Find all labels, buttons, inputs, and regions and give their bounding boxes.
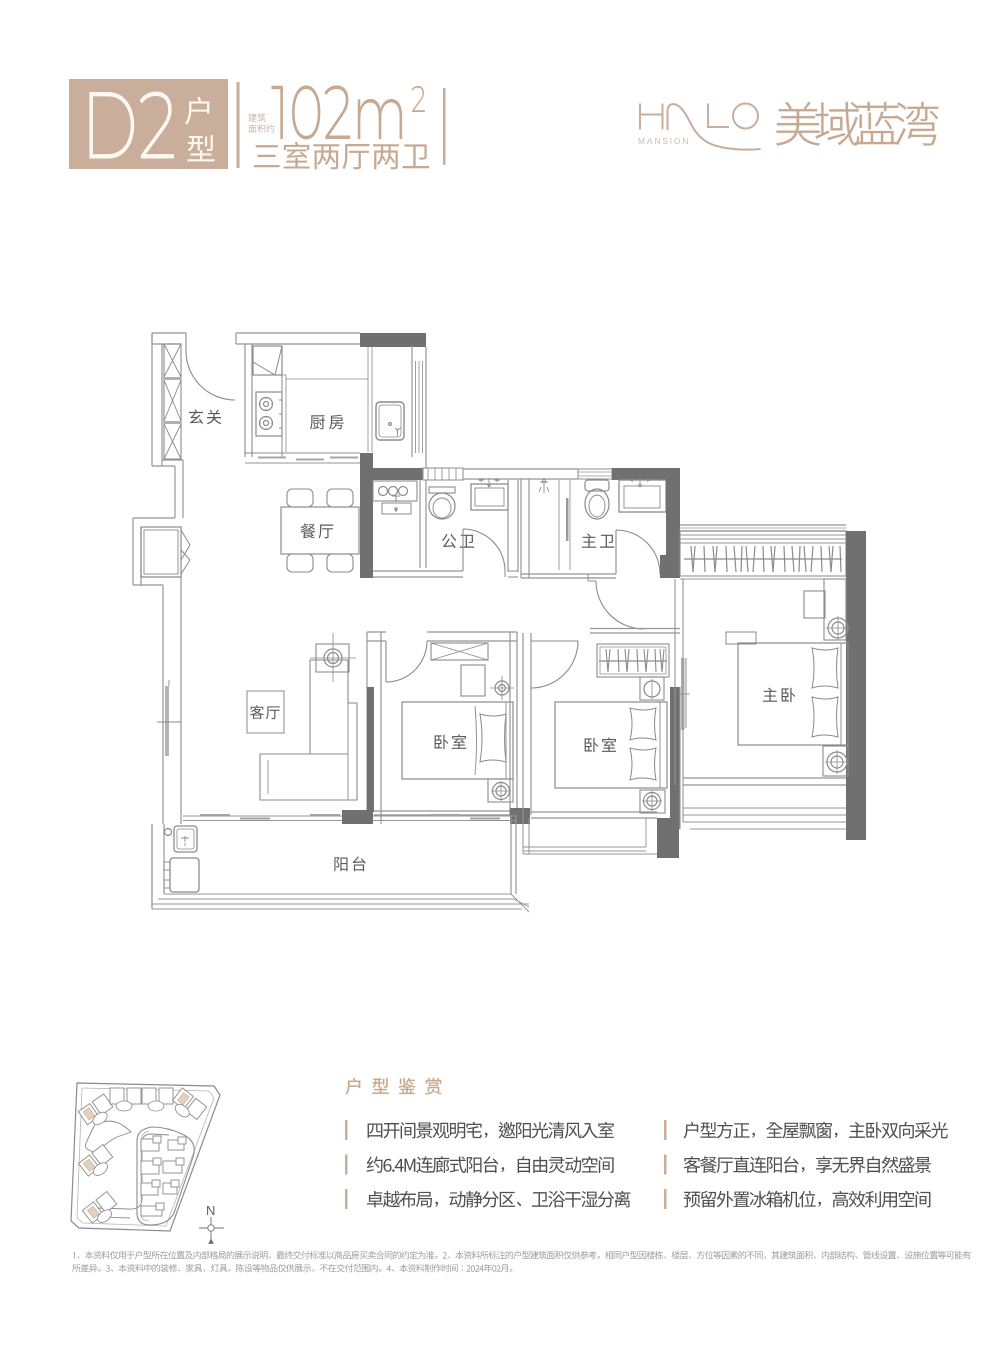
svg-text:N: N — [206, 1203, 215, 1218]
svg-text:MANSION: MANSION — [638, 136, 690, 146]
